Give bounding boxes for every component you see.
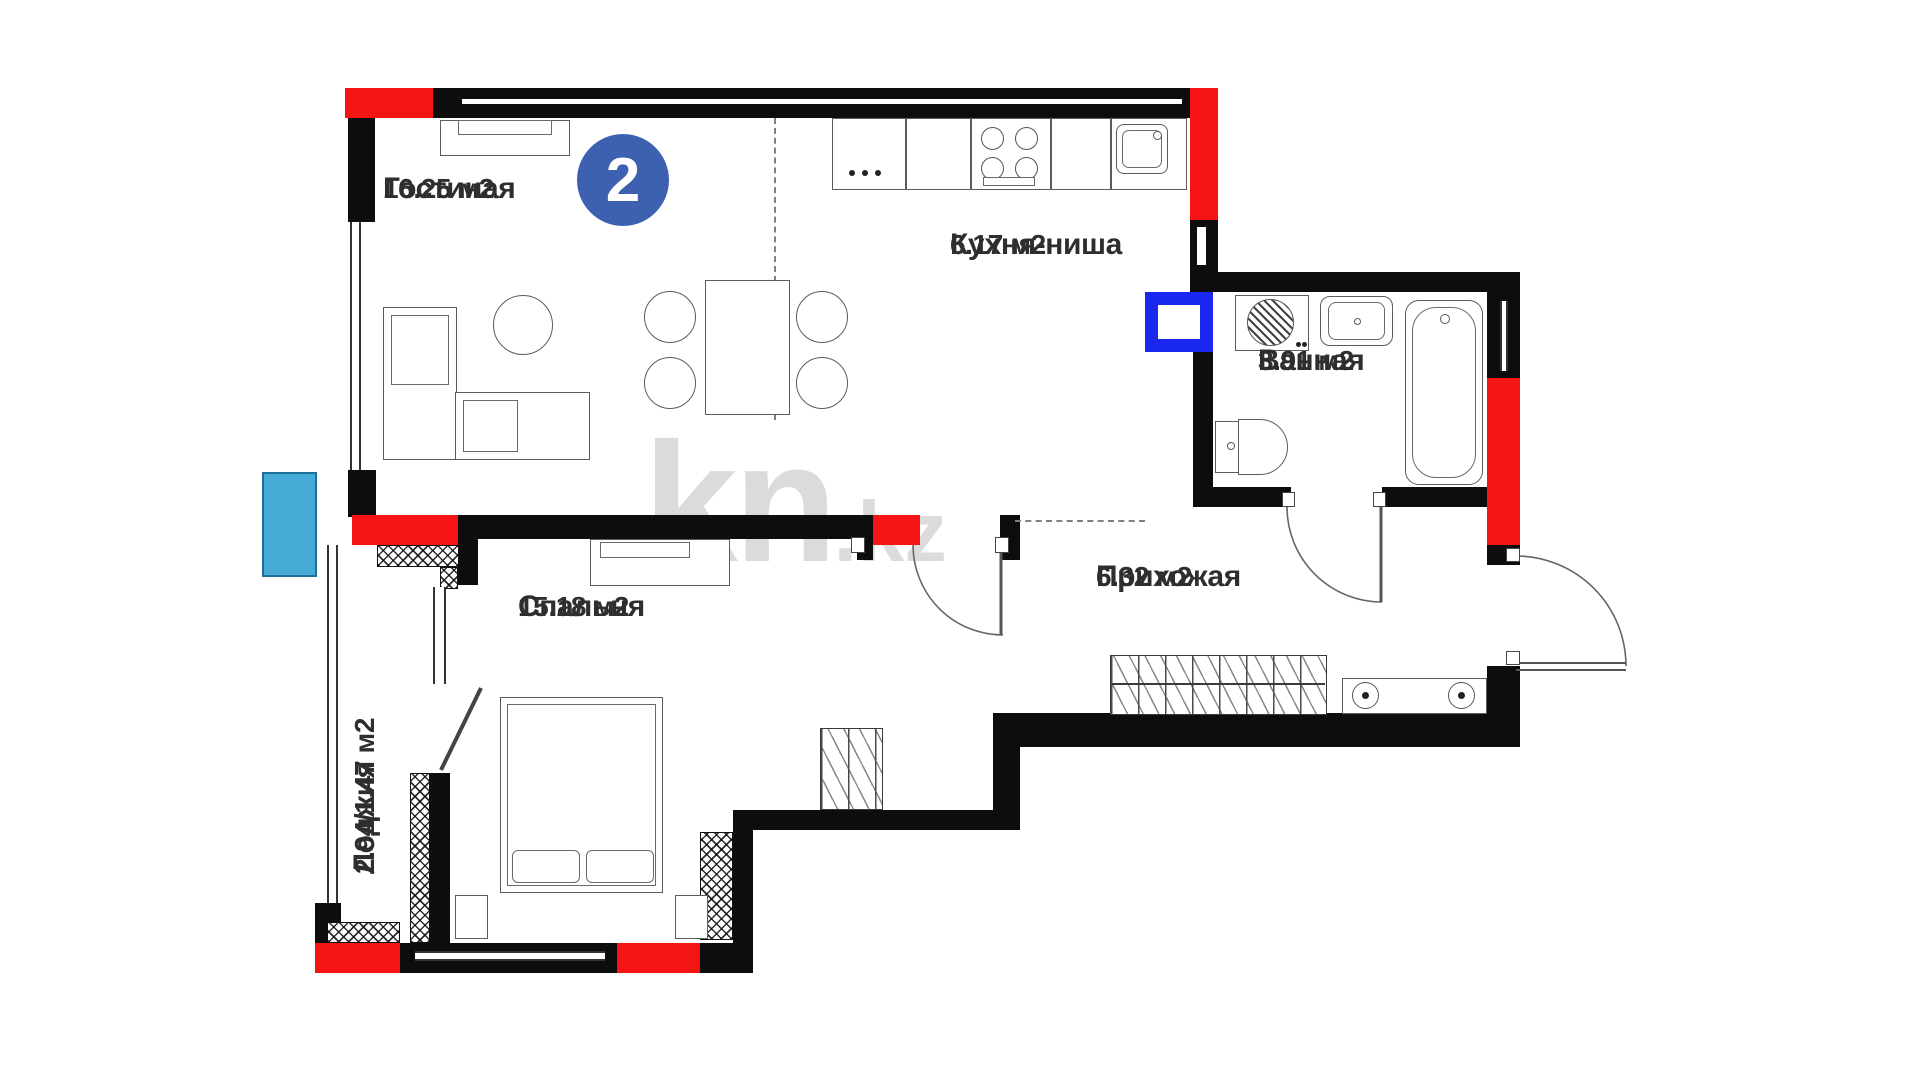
door-jamb bbox=[1506, 651, 1520, 665]
door-jamb bbox=[995, 537, 1009, 553]
door-jamb bbox=[1373, 492, 1386, 507]
room-area: 2.94/1.47 м2 bbox=[346, 718, 383, 874]
door-jamb bbox=[851, 537, 865, 553]
floor-plan: kn.kz bbox=[0, 0, 1920, 1080]
room-label-loggia: Лоджия 2.94/1.47 м2 bbox=[346, 614, 420, 874]
room-area: 6.32 м2 bbox=[1096, 558, 1192, 595]
room-area: 3.91 м2 bbox=[1258, 342, 1354, 379]
room-area: 15.18 м2 bbox=[518, 588, 629, 625]
room-area: 6.17 м2 bbox=[950, 226, 1046, 263]
apartment-number-badge: 2 bbox=[577, 134, 669, 226]
door-jamb bbox=[1506, 548, 1520, 562]
apartment-number: 2 bbox=[606, 145, 640, 216]
door-swings bbox=[0, 0, 1920, 1080]
door-jamb bbox=[1282, 492, 1295, 507]
room-area: 16.25 м2 bbox=[383, 170, 494, 207]
